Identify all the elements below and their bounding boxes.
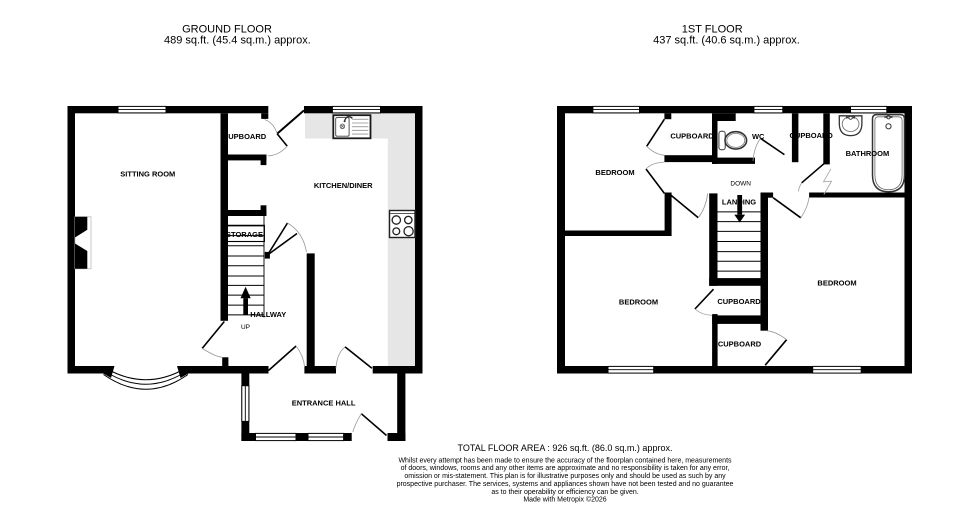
svg-text:CUPBOARD: CUPBOARD [718,339,762,348]
svg-text:as to their operability or eff: as to their operability or efficiency ca… [491,489,638,496]
svg-text:489 sq.ft. (45.4 sq.m.) approx: 489 sq.ft. (45.4 sq.m.) approx. [164,35,311,47]
svg-text:ENTRANCE HALL: ENTRANCE HALL [292,399,356,408]
svg-text:KITCHEN/DINER: KITCHEN/DINER [314,181,373,190]
svg-text:STORAGE: STORAGE [226,230,263,239]
svg-text:HALLWAY: HALLWAY [250,310,286,319]
svg-text:BEDROOM: BEDROOM [817,278,856,287]
svg-text:437 sq.ft. (40.6 sq.m.) approx: 437 sq.ft. (40.6 sq.m.) approx. [653,35,800,47]
svg-text:BEDROOM: BEDROOM [595,168,634,177]
svg-text:prospective purchaser. The ser: prospective purchaser. The services, sys… [397,481,734,488]
svg-text:CUPBOARD: CUPBOARD [223,132,267,141]
svg-text:TOTAL FLOOR AREA : 926 sq.ft.: TOTAL FLOOR AREA : 926 sq.ft. (86.0 sq.m… [458,443,673,453]
svg-text:LANDING: LANDING [722,198,756,207]
svg-text:CUPBOARD: CUPBOARD [790,131,834,140]
svg-text:Made with Metropix ©2026: Made with Metropix ©2026 [523,496,606,504]
svg-text:of doors, windows, rooms and a: of doors, windows, rooms and any other i… [401,465,730,472]
svg-text:omission or mis-statement. Thi: omission or mis-statement. This plan is … [404,473,726,480]
svg-text:CUPBOARD: CUPBOARD [717,297,761,306]
svg-text:WC: WC [752,132,765,141]
svg-text:UP: UP [241,324,250,331]
svg-text:BATHROOM: BATHROOM [846,149,890,158]
svg-text:DOWN: DOWN [730,180,751,187]
svg-text:SITTING ROOM: SITTING ROOM [120,170,175,179]
svg-text:BEDROOM: BEDROOM [619,298,658,307]
svg-text:CUPBOARD: CUPBOARD [670,132,714,141]
svg-text:Whilst every attempt has been: Whilst every attempt has been made to en… [398,457,732,464]
